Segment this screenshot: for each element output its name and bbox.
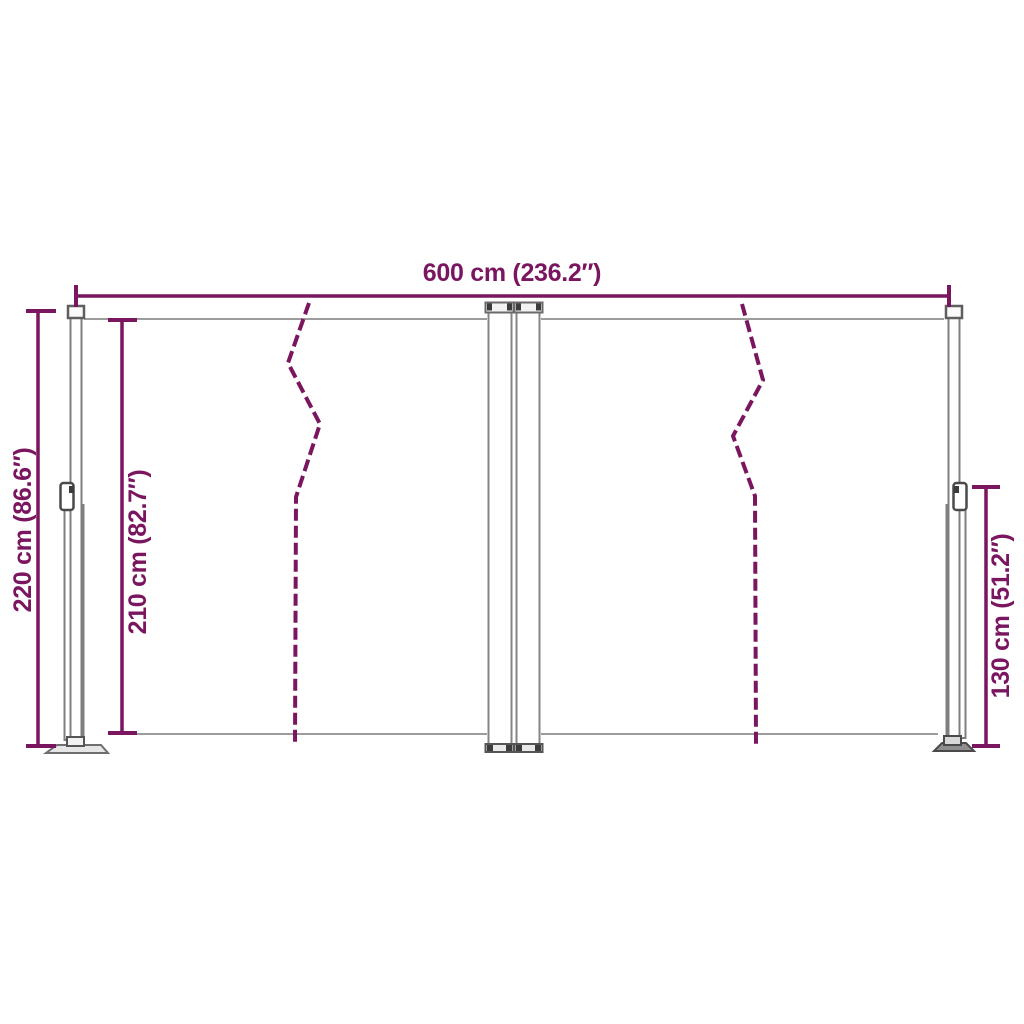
left-post-upper-pole xyxy=(71,316,82,740)
left-post xyxy=(46,306,108,753)
cassette-left-body xyxy=(489,308,512,745)
right-post-foot xyxy=(944,736,961,745)
cassette-base-bolt xyxy=(535,745,541,751)
dimension-label-total-width: 600 cm (236.2″) xyxy=(423,259,601,287)
right-post-handle-knob xyxy=(954,486,959,493)
left-post-handle-knob xyxy=(69,486,74,493)
right-post xyxy=(934,306,974,751)
dimension-label-inner-height: 210 cm (82.7″) xyxy=(124,470,152,635)
cassette-base-bolt xyxy=(516,745,522,751)
right-post-upper-pole xyxy=(949,316,960,740)
dimension-label-post-height: 130 cm (51.2″) xyxy=(987,534,1015,699)
left-post-cap xyxy=(68,306,84,318)
dimension-label-total-height: 220 cm (86.6″) xyxy=(9,448,37,613)
dimension-total-width: 600 cm (236.2″) xyxy=(76,259,949,307)
dimension-post-height: 130 cm (51.2″) xyxy=(972,487,1015,746)
fabric-fold-line-right xyxy=(733,304,763,745)
product-dimension-diagram: 600 cm (236.2″) 220 cm (86.6″) 210 cm (8… xyxy=(0,0,1024,1024)
cassette-cap-bolt xyxy=(507,304,512,311)
dimension-total-height: 220 cm (86.6″) xyxy=(9,311,56,746)
central-cassette xyxy=(486,303,543,753)
cassette-cap-bolt xyxy=(487,304,492,311)
fabric-fold-line-left xyxy=(288,303,320,745)
right-post-cap xyxy=(946,306,962,318)
cassette-base-bolt xyxy=(487,745,493,751)
left-post-foot xyxy=(67,737,84,746)
cassette-right-body xyxy=(517,308,540,745)
dimension-inner-height: 210 cm (82.7″) xyxy=(108,320,152,733)
cassette-base-bolt xyxy=(506,745,512,751)
cassette-cap-bolt xyxy=(536,304,541,311)
awning-structure xyxy=(46,303,974,754)
cassette-cap-bolt xyxy=(516,304,521,311)
